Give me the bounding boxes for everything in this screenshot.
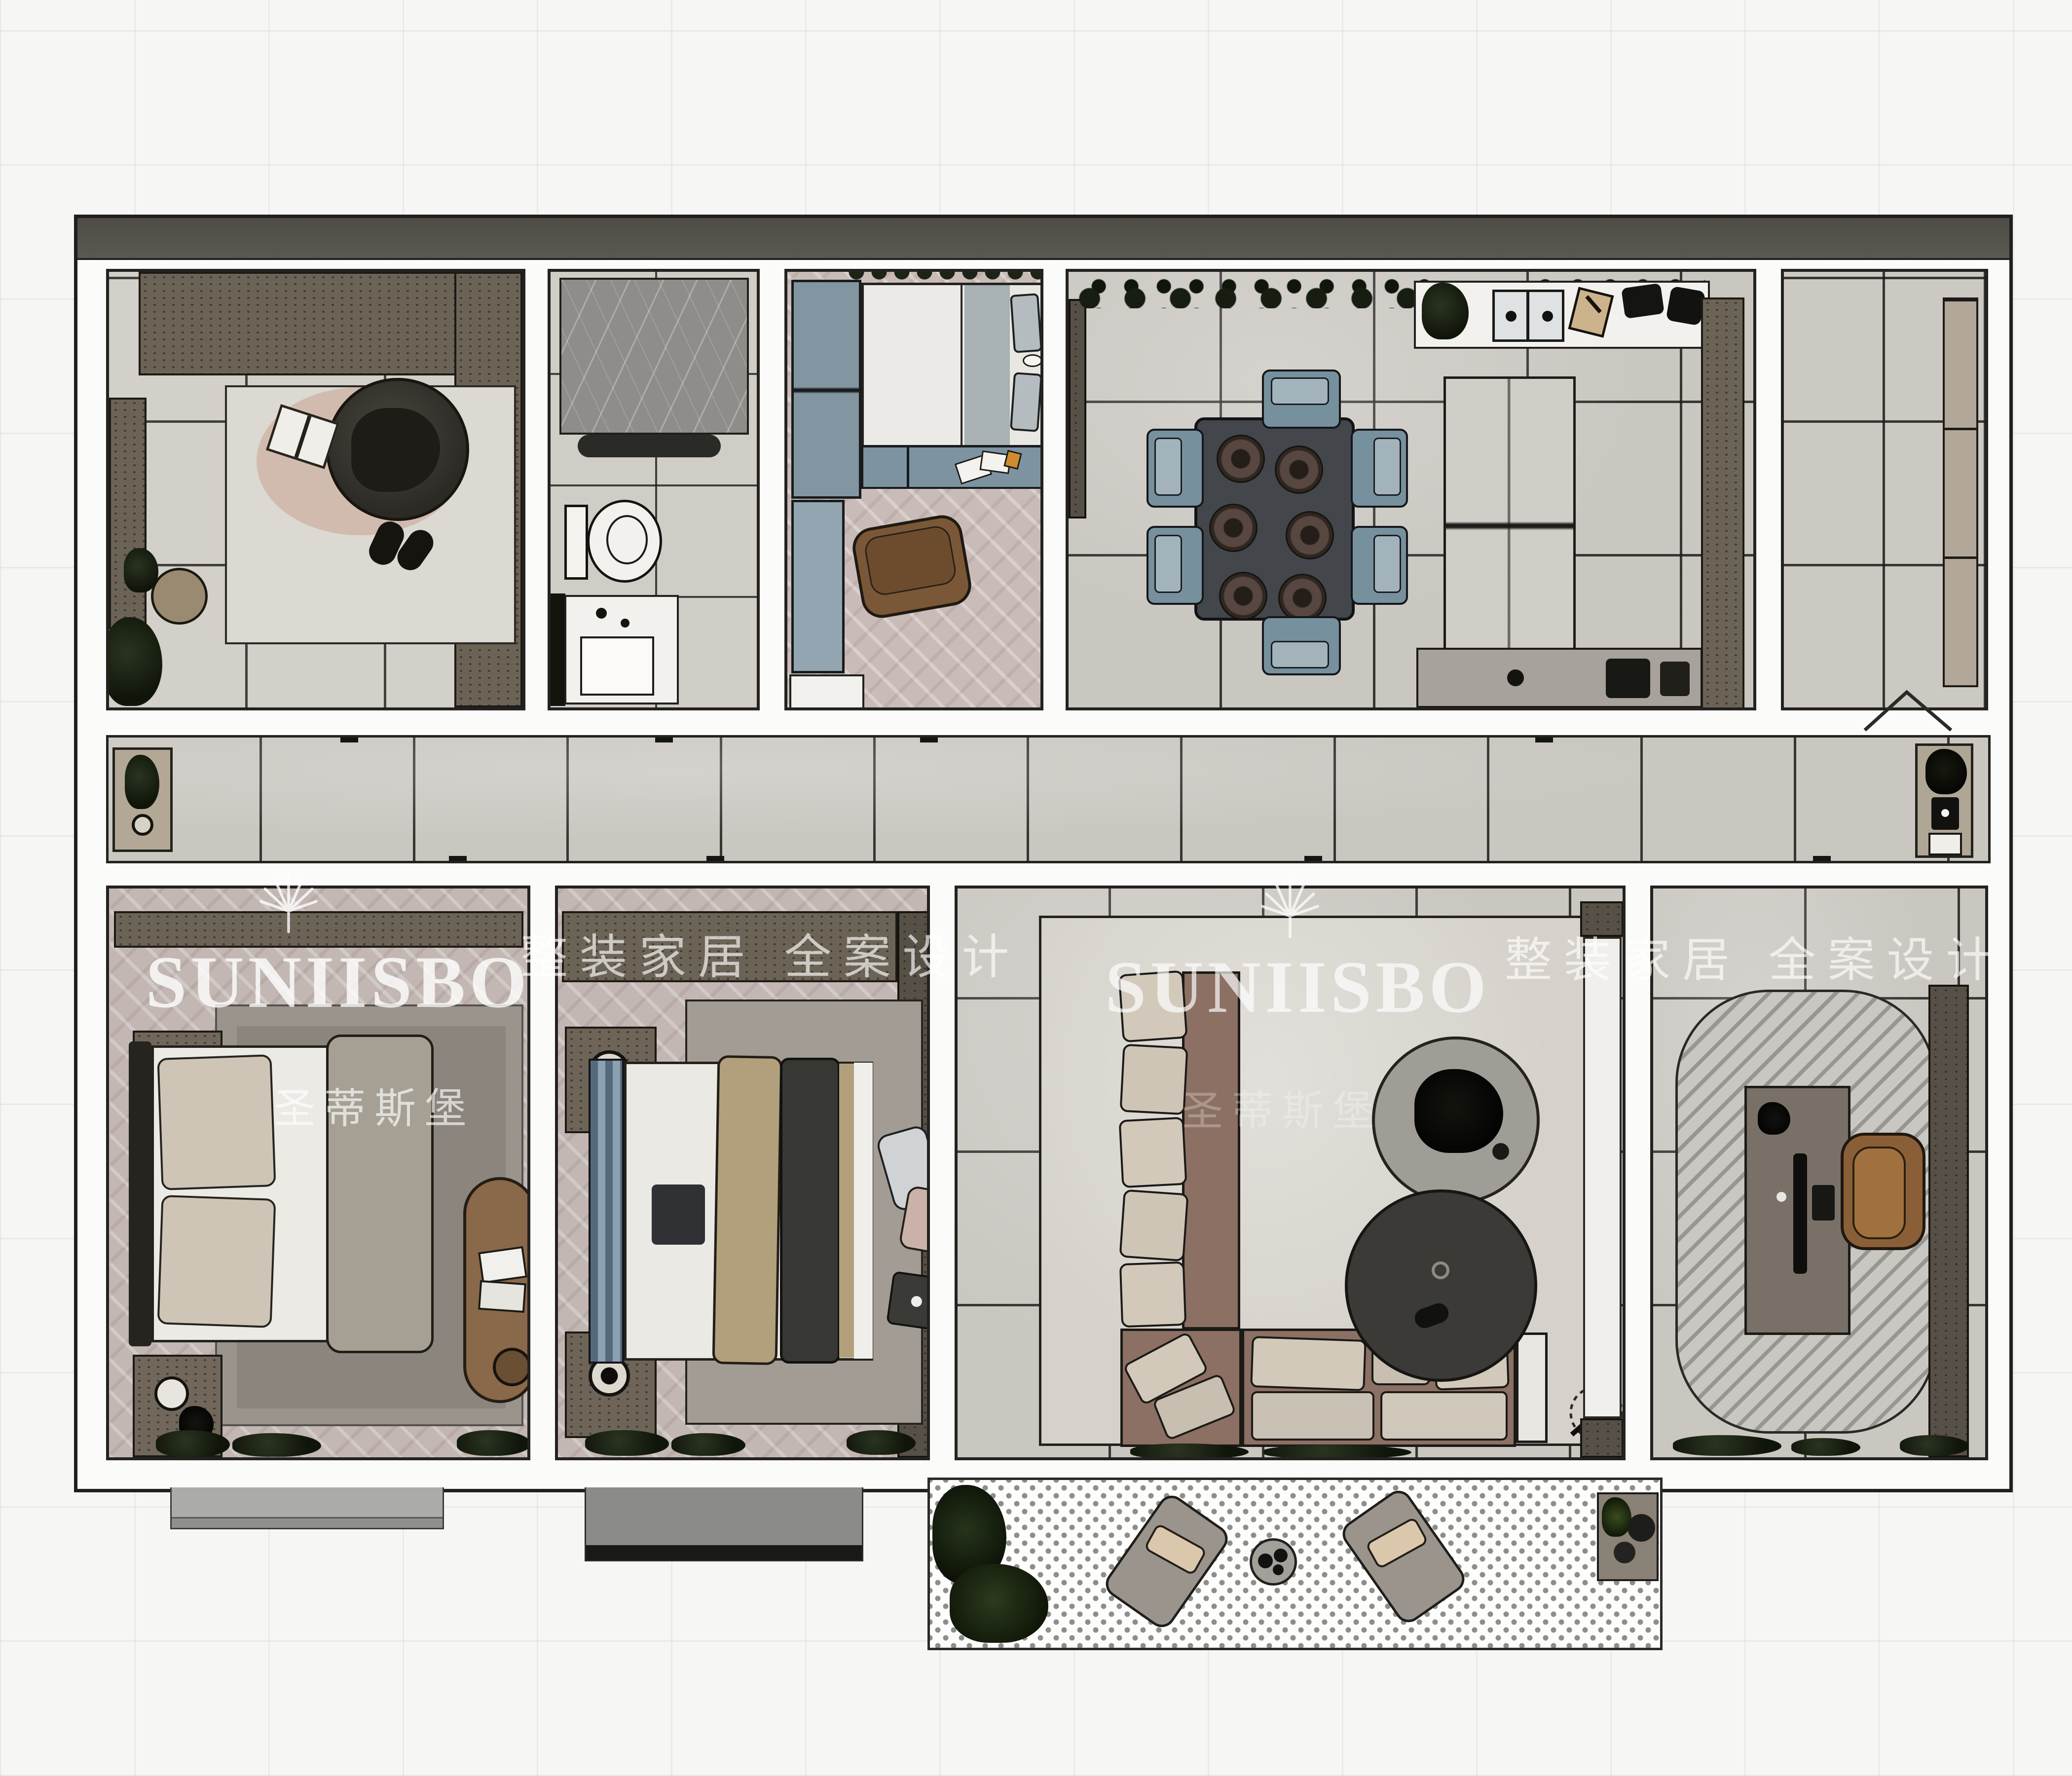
kitchen-counter	[1414, 281, 1710, 349]
door-mark	[655, 736, 673, 742]
watermark-brand-cn-right: 圣蒂斯堡	[1182, 1078, 1383, 1138]
door-mark	[1535, 736, 1553, 742]
duvet-black	[780, 1058, 840, 1364]
blanket-tan-edge	[839, 1064, 854, 1358]
chair-pillow	[1365, 1517, 1429, 1570]
bookcase	[1928, 985, 1969, 1457]
dish-rack	[1665, 286, 1705, 326]
bench-capsule	[463, 1177, 530, 1403]
dining-chair	[1351, 429, 1408, 508]
window-plants-icon	[1263, 1445, 1411, 1459]
plate	[1217, 435, 1265, 483]
watermark-tagline-left: 整装家居 全案设计	[520, 919, 1021, 987]
pillow	[157, 1054, 276, 1190]
entry-mat	[112, 747, 173, 852]
watermark-brand-cn-left: 圣蒂斯堡	[274, 1075, 475, 1135]
table-dot	[1432, 1261, 1449, 1279]
tray-dot	[910, 1295, 923, 1308]
tall-cabinet-column	[1701, 297, 1744, 710]
kitchen-island	[1443, 376, 1576, 672]
washer-side-panel	[551, 593, 565, 706]
entry-door-swing-icon	[1860, 688, 1959, 733]
magazines	[478, 1280, 526, 1313]
entry-console	[1915, 743, 1973, 858]
cabinet-left	[109, 398, 147, 629]
window-plants-icon	[156, 1430, 230, 1457]
sofa-corner-chaise	[1120, 1329, 1242, 1447]
tile-strip	[1943, 297, 1978, 687]
cup	[1258, 1554, 1273, 1568]
bay-stub	[170, 1487, 444, 1529]
dining-chair	[1351, 526, 1408, 605]
headboard	[129, 1041, 151, 1346]
sofa-armrest	[1516, 1332, 1548, 1443]
plant-icon	[1414, 1069, 1503, 1153]
appliance	[1606, 659, 1650, 698]
wardrobe-top	[139, 272, 494, 375]
brand-emblem-icon	[1256, 873, 1325, 942]
device	[1931, 797, 1959, 830]
window-plants-icon	[1673, 1435, 1781, 1456]
lounge-chair	[1337, 1485, 1470, 1628]
pot	[1628, 1514, 1655, 1542]
shower-screen	[578, 435, 721, 457]
balcony-plant-icon	[950, 1564, 1048, 1643]
stub-edge	[172, 1517, 443, 1528]
appliance	[1660, 662, 1690, 696]
duvet-white	[864, 285, 962, 445]
window-plants-icon	[232, 1433, 321, 1457]
sofa-back-cushion	[1250, 1336, 1366, 1391]
coffee-table-dark	[1345, 1189, 1537, 1382]
pot	[1614, 1542, 1635, 1563]
tablet	[652, 1184, 705, 1245]
chair-cushion	[351, 408, 440, 492]
lounge-chair	[1101, 1490, 1233, 1632]
plate	[1209, 504, 1258, 552]
magazines	[478, 1246, 527, 1284]
window-plants-icon	[1076, 278, 1436, 308]
dining-chair	[1262, 370, 1341, 429]
pillow	[1010, 372, 1042, 432]
door-mark	[1813, 856, 1831, 863]
wall-cabinet-left	[1069, 299, 1086, 518]
door-mark	[1304, 856, 1322, 863]
window-plants-icon	[1130, 1443, 1249, 1459]
dining-chair	[1147, 526, 1204, 605]
lamp	[154, 1376, 189, 1411]
lounge-chair	[326, 378, 469, 521]
plate	[1286, 511, 1334, 559]
card-orange	[1003, 450, 1022, 470]
sheet-edge	[854, 1063, 873, 1359]
vanity-unit	[564, 595, 679, 704]
sofa-back-cushion	[1119, 1189, 1188, 1262]
blanket-gray	[964, 285, 1010, 445]
bench-divider	[907, 447, 909, 487]
desk-dot	[1776, 1192, 1786, 1202]
stub-edge	[586, 1545, 862, 1560]
dining-chair	[1147, 429, 1204, 508]
pillow	[157, 1195, 276, 1328]
wardrobe-blue	[791, 280, 861, 499]
tray-dark	[886, 1271, 930, 1331]
side-table	[1250, 1538, 1297, 1586]
beanbag-inner	[863, 524, 958, 597]
brand-emblem-icon	[254, 868, 323, 937]
planter-plant-icon	[1602, 1497, 1631, 1537]
plant-icon	[1925, 749, 1967, 794]
tv-cabinet-bottom	[1580, 1418, 1624, 1458]
bed-small	[861, 283, 1043, 447]
cup	[1412, 1300, 1451, 1331]
window-plants-icon	[585, 1430, 669, 1456]
sofa-back-cushion	[1118, 1117, 1187, 1188]
basin	[580, 636, 654, 696]
window-plants-icon	[1791, 1438, 1860, 1456]
office-chair	[1841, 1133, 1925, 1250]
chair-pillow	[1144, 1523, 1208, 1576]
plant-icon	[106, 617, 162, 706]
shoe-cabinet	[789, 674, 864, 710]
kitchen-sink	[1492, 290, 1564, 342]
shower-area	[559, 278, 749, 435]
plant-icon	[125, 755, 159, 809]
sofa-seat-cushion	[1251, 1391, 1374, 1441]
bay-stub	[585, 1487, 863, 1561]
dish-rack	[1621, 283, 1665, 319]
desk-plant-icon	[1758, 1102, 1790, 1135]
bed-2	[589, 1059, 875, 1364]
toilet-lid	[606, 515, 648, 564]
planter-box	[1597, 1492, 1659, 1581]
watermark-brand-left: SUNIISBO	[146, 940, 531, 1025]
room-cloakroom	[106, 269, 525, 710]
book-spine	[295, 415, 312, 458]
toilet-tank	[564, 505, 588, 580]
door-mark	[706, 856, 724, 863]
coffee-table-gray	[1372, 1036, 1540, 1204]
dining-chair	[1262, 616, 1341, 675]
faucet-dot	[596, 608, 607, 619]
cabinet-blue-low	[791, 500, 845, 673]
window-plants-icon	[1900, 1435, 1969, 1456]
device-dot	[1941, 809, 1949, 817]
tray-round	[493, 1348, 530, 1386]
room-balcony	[927, 1478, 1663, 1650]
foot-bench-blue	[861, 445, 1043, 489]
room-utility	[1781, 269, 1988, 710]
chair-seat	[1852, 1147, 1906, 1239]
watermark-brand-right: SUNIISBO	[1105, 945, 1490, 1030]
door-mark	[449, 856, 467, 863]
door-mark	[340, 736, 358, 742]
sink-divider	[1526, 292, 1529, 339]
cup	[1273, 1564, 1284, 1575]
plate	[1278, 574, 1327, 622]
plate	[1219, 572, 1267, 620]
lower-counter	[1416, 648, 1702, 708]
room-hallway	[106, 735, 1991, 863]
pillow	[1010, 293, 1042, 353]
table-dot	[1492, 1143, 1509, 1160]
pouf	[151, 568, 208, 625]
plant-icon	[124, 548, 158, 592]
hob-dot	[1507, 669, 1524, 686]
toilet-bowl	[587, 500, 662, 583]
room-bathroom	[548, 269, 760, 710]
exterior-top-band	[77, 218, 2009, 260]
sofa-seat-cushion	[1380, 1391, 1508, 1441]
headboard-striped	[589, 1059, 624, 1364]
knife	[1585, 295, 1602, 313]
floor-plan-canvas: SUNIISBO 圣蒂斯堡 整装家居 全案设计 SUNIISBO 圣蒂斯堡 整装…	[0, 0, 2072, 1776]
desk-device	[1812, 1185, 1835, 1221]
room-dining-kitchen	[1066, 269, 1756, 710]
monitor-bar	[1793, 1153, 1807, 1274]
cutting-board	[1568, 287, 1614, 337]
watermark-tagline-right: 整装家居 全案设计	[1505, 922, 2005, 990]
window-plants-icon	[671, 1433, 745, 1456]
plant-icon	[1422, 283, 1469, 339]
sofa-back-cushion	[1119, 1044, 1188, 1115]
drain-dot	[1542, 311, 1553, 322]
room-bedroom-3	[784, 269, 1043, 710]
faucet-dot	[621, 619, 629, 628]
door-mark	[920, 736, 938, 742]
sofa-back-cushion	[1119, 1261, 1186, 1328]
tv-board	[1583, 937, 1622, 1418]
cup	[1023, 354, 1042, 367]
box	[1928, 833, 1962, 855]
window-plants-icon	[847, 1430, 916, 1455]
cup	[1274, 1549, 1288, 1562]
window-plants-icon	[457, 1430, 530, 1456]
vase-ring	[132, 814, 153, 836]
desk	[1744, 1086, 1850, 1335]
drain-dot	[1506, 311, 1517, 322]
blanket-tan	[712, 1055, 783, 1365]
plate	[1275, 445, 1323, 494]
beanbag-rug	[850, 512, 975, 621]
